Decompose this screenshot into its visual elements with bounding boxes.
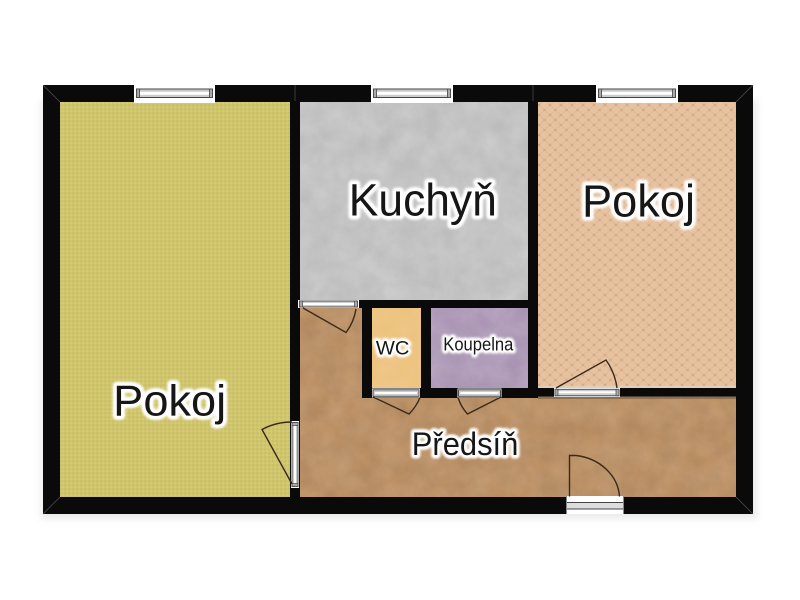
svg-text:Pokoj: Pokoj [582,176,695,227]
svg-text:WC: WC [376,338,410,360]
svg-text:Koupelna: Koupelna [443,334,514,355]
svg-text:Pokoj: Pokoj [113,377,226,426]
svg-text:Kuchyň: Kuchyň [349,175,497,226]
svg-text:Předsíň: Předsíň [412,426,519,462]
